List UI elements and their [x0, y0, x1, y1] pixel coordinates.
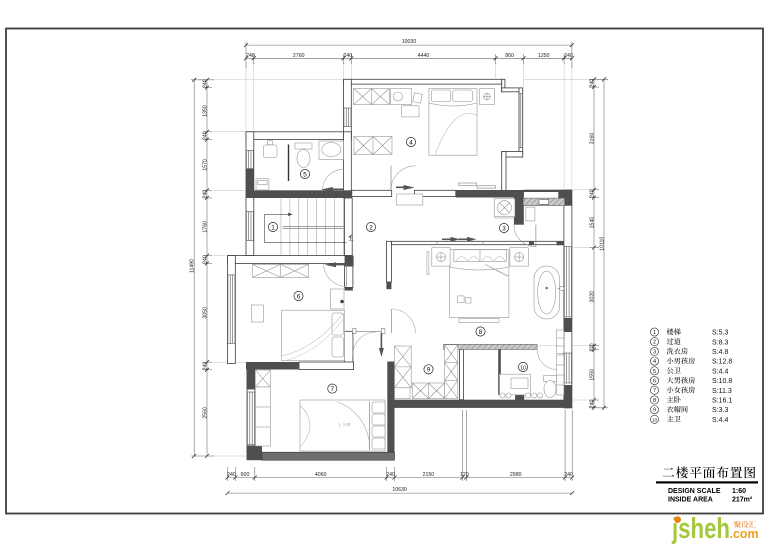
svg-text:240: 240: [203, 362, 209, 371]
svg-text:S:4.4: S:4.4: [712, 368, 728, 375]
svg-text:3: 3: [653, 349, 656, 355]
svg-text:2150: 2150: [423, 472, 435, 478]
svg-text:240: 240: [564, 472, 573, 478]
svg-text:1250: 1250: [538, 53, 550, 59]
svg-text:240: 240: [564, 53, 573, 59]
svg-text:3160: 3160: [590, 133, 596, 145]
svg-text:9: 9: [653, 408, 656, 414]
svg-text:1350: 1350: [203, 105, 209, 117]
svg-text:3: 3: [502, 225, 506, 232]
svg-text:240: 240: [343, 53, 352, 59]
svg-text:9: 9: [427, 367, 431, 374]
svg-text:120: 120: [460, 472, 469, 478]
svg-text:10: 10: [652, 417, 658, 422]
svg-text:217m²: 217m²: [732, 497, 753, 504]
svg-text:3050: 3050: [203, 307, 209, 319]
svg-text:1570: 1570: [203, 159, 209, 171]
svg-text:120: 120: [590, 343, 596, 352]
svg-text:1550: 1550: [590, 369, 596, 381]
svg-text:6: 6: [297, 293, 301, 300]
svg-text:8: 8: [653, 398, 656, 404]
svg-text:1540: 1540: [590, 217, 596, 229]
svg-text:2560: 2560: [203, 407, 209, 419]
svg-text:S:8.3: S:8.3: [712, 339, 728, 346]
svg-text:240: 240: [386, 472, 395, 478]
svg-text:1760: 1760: [203, 221, 209, 233]
svg-text:10030: 10030: [402, 39, 417, 45]
svg-text:S:4.4: S:4.4: [712, 417, 728, 424]
svg-text:4440: 4440: [418, 53, 430, 59]
svg-text:6: 6: [653, 379, 656, 385]
svg-text:2980: 2980: [510, 472, 522, 478]
svg-text:11490: 11490: [190, 259, 196, 273]
svg-text:S:4.8: S:4.8: [712, 349, 728, 356]
svg-text:240: 240: [203, 255, 209, 264]
svg-text:2760: 2760: [293, 53, 305, 59]
svg-text:.com: .com: [730, 527, 759, 541]
svg-text:240: 240: [203, 79, 209, 88]
svg-text:240: 240: [203, 131, 209, 140]
svg-text:7: 7: [653, 388, 656, 394]
svg-text:4060: 4060: [315, 472, 327, 478]
svg-text:240: 240: [203, 190, 209, 199]
svg-text:S:3.3: S:3.3: [712, 407, 728, 414]
svg-text:4: 4: [409, 139, 413, 146]
svg-text:10: 10: [520, 365, 526, 371]
svg-text:S:11.3: S:11.3: [712, 388, 732, 395]
svg-text:240: 240: [590, 399, 596, 408]
svg-text:INSIDE AREA: INSIDE AREA: [668, 497, 713, 504]
svg-text:7: 7: [331, 386, 335, 393]
svg-text:10630: 10630: [392, 487, 407, 493]
svg-text:1: 1: [653, 330, 656, 336]
svg-text:S:5.3: S:5.3: [712, 330, 728, 337]
svg-text:240: 240: [246, 53, 255, 59]
svg-text:10110: 10110: [600, 237, 606, 251]
svg-text:1:60: 1:60: [732, 488, 746, 495]
svg-text:4: 4: [653, 359, 656, 365]
svg-text:S:16.1: S:16.1: [712, 398, 732, 405]
svg-text:5: 5: [653, 369, 656, 375]
svg-text:240: 240: [227, 472, 236, 478]
svg-text:8: 8: [479, 329, 483, 336]
svg-text:2: 2: [369, 224, 373, 231]
svg-text:5: 5: [303, 171, 307, 178]
svg-text:600: 600: [241, 472, 250, 478]
svg-text:S:12.8: S:12.8: [712, 359, 732, 366]
svg-text:3020: 3020: [590, 291, 596, 303]
svg-text:1: 1: [271, 224, 275, 231]
svg-text:2: 2: [653, 340, 656, 346]
svg-text:S:10.8: S:10.8: [712, 378, 732, 385]
svg-text:240: 240: [590, 189, 596, 198]
svg-text:DESIGN SCALE: DESIGN SCALE: [668, 488, 721, 495]
svg-text:860: 860: [505, 53, 514, 59]
svg-text:240: 240: [590, 79, 596, 88]
